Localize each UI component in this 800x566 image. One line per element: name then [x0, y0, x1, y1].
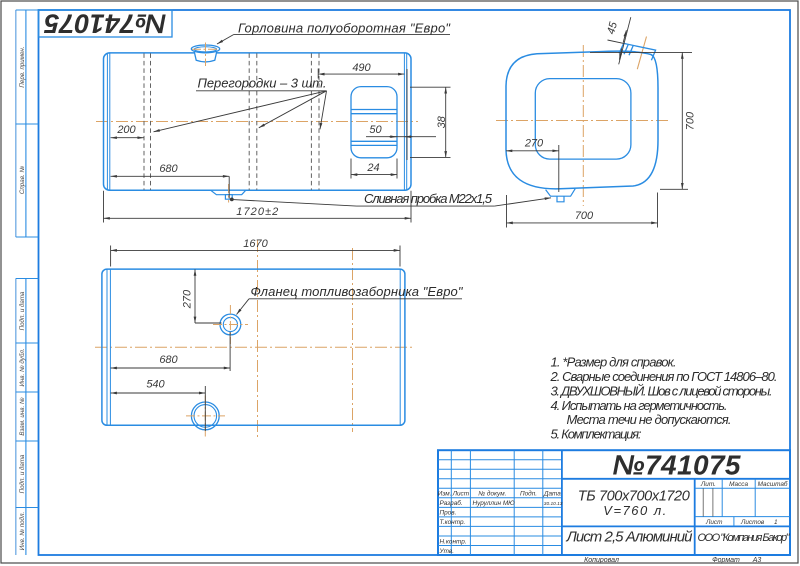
svg-text:270: 270: [182, 289, 194, 309]
svg-text:№741075: №741075: [43, 9, 166, 39]
svg-text:Лист: Лист: [452, 490, 470, 497]
svg-text:5. Комплектация:: 5. Комплектация:: [551, 427, 642, 442]
svg-text:Инв. № дубл.: Инв. № дубл.: [19, 348, 26, 386]
svg-text:490: 490: [352, 62, 371, 74]
svg-text:Лит.: Лит.: [700, 481, 716, 488]
svg-text:Дата: Дата: [543, 490, 561, 497]
svg-text:Н.контр.: Н.контр.: [440, 538, 467, 545]
svg-text:1. *Размер для справок.: 1. *Размер для справок.: [551, 355, 677, 370]
svg-text:Перв. примен.: Перв. примен.: [19, 46, 26, 87]
svg-text:Инв. № подл.: Инв. № подл.: [19, 512, 26, 550]
svg-text:V=760 л.: V=760 л.: [603, 503, 666, 518]
svg-text:1: 1: [774, 519, 778, 526]
svg-text:Разраб.: Разраб.: [440, 499, 463, 507]
svg-text:Сливная пробка М22х1,5: Сливная пробка М22х1,5: [364, 191, 493, 206]
svg-text:Лист 2,5 Алюминий: Лист 2,5 Алюминий: [566, 529, 694, 546]
svg-text:Горловина полуоборотная "Евро": Горловина полуоборотная "Евро": [238, 20, 451, 35]
svg-text:4. Испытать на герметичность.: 4. Испытать на герметичность.: [551, 398, 728, 413]
svg-text:№741075: №741075: [613, 450, 741, 481]
svg-text:Листов: Листов: [740, 519, 765, 526]
svg-text:Перегородки – 3 шт.: Перегородки – 3 шт.: [198, 76, 327, 91]
svg-text:50: 50: [369, 124, 382, 136]
svg-text:Нуруллин МЮ: Нуруллин МЮ: [473, 500, 516, 507]
svg-text:24: 24: [366, 162, 379, 174]
svg-text:700: 700: [685, 111, 697, 130]
svg-text:Справ. №: Справ. №: [19, 166, 26, 194]
svg-text:700: 700: [575, 210, 594, 222]
svg-text:200: 200: [116, 124, 136, 136]
svg-text:Т.контр.: Т.контр.: [440, 519, 466, 526]
svg-text:Лист: Лист: [705, 519, 723, 526]
svg-text:Формат: Формат: [712, 557, 740, 564]
svg-text:Подп.: Подп.: [520, 489, 537, 497]
svg-text:Подп. и дата: Подп. и дата: [19, 291, 26, 330]
svg-text:№ докум.: № докум.: [478, 489, 506, 497]
svg-text:Утв.: Утв.: [439, 548, 455, 555]
svg-text:38: 38: [436, 115, 448, 128]
svg-text:3. ДВУХШОВНЫЙ. Шов с лицевой с: 3. ДВУХШОВНЫЙ. Шов с лицевой стороны.: [551, 383, 773, 399]
svg-text:ООО "Компания Бакор": ООО "Компания Бакор": [698, 532, 791, 544]
svg-text:1720±2: 1720±2: [236, 206, 278, 218]
svg-text:2. Сварные соединения по ГОСТ: 2. Сварные соединения по ГОСТ 14806–80.: [550, 369, 778, 384]
svg-text:680: 680: [159, 354, 178, 366]
svg-text:Пров.: Пров.: [440, 510, 457, 517]
svg-text:680: 680: [159, 163, 178, 175]
svg-text:Фланец топливозаборника "Евро": Фланец топливозаборника "Евро": [251, 284, 464, 299]
svg-text:30.10.13: 30.10.13: [544, 501, 563, 507]
svg-text:1670: 1670: [243, 238, 268, 250]
svg-text:270: 270: [524, 138, 544, 150]
svg-text:Подп. и дата: Подп. и дата: [19, 454, 26, 493]
svg-text:Взам. инв. №: Взам. инв. №: [19, 397, 26, 436]
svg-text:540: 540: [146, 379, 165, 391]
svg-text:Места течи не допускаются.: Места течи не допускаются.: [567, 412, 732, 427]
svg-text:Масса: Масса: [729, 481, 748, 488]
svg-text:А3: А3: [752, 557, 762, 564]
svg-text:Масштаб: Масштаб: [758, 480, 788, 488]
svg-text:Изм.: Изм.: [438, 490, 452, 497]
svg-text:Копировал: Копировал: [584, 557, 619, 564]
